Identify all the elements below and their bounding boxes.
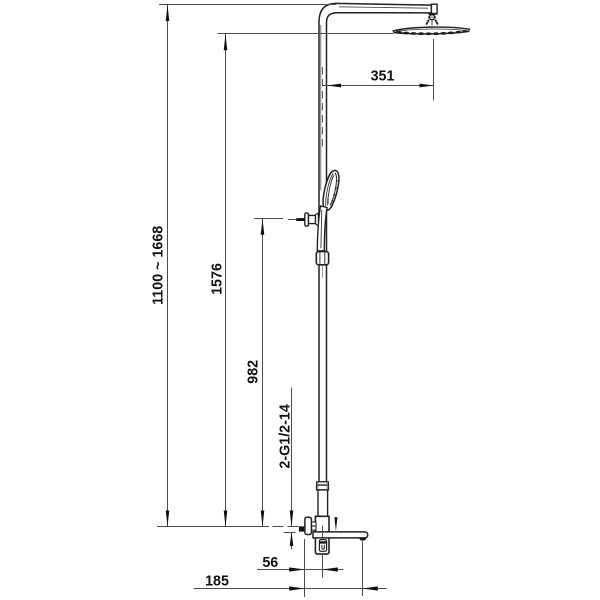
- svg-text:2-G1/2-14: 2-G1/2-14: [278, 404, 294, 468]
- svg-text:1576: 1576: [209, 263, 225, 295]
- svg-text:351: 351: [371, 69, 395, 85]
- svg-text:982: 982: [246, 360, 262, 384]
- svg-text:185: 185: [205, 574, 229, 590]
- svg-text:56: 56: [262, 555, 278, 571]
- svg-text:1100 ~ 1668: 1100 ~ 1668: [151, 226, 167, 305]
